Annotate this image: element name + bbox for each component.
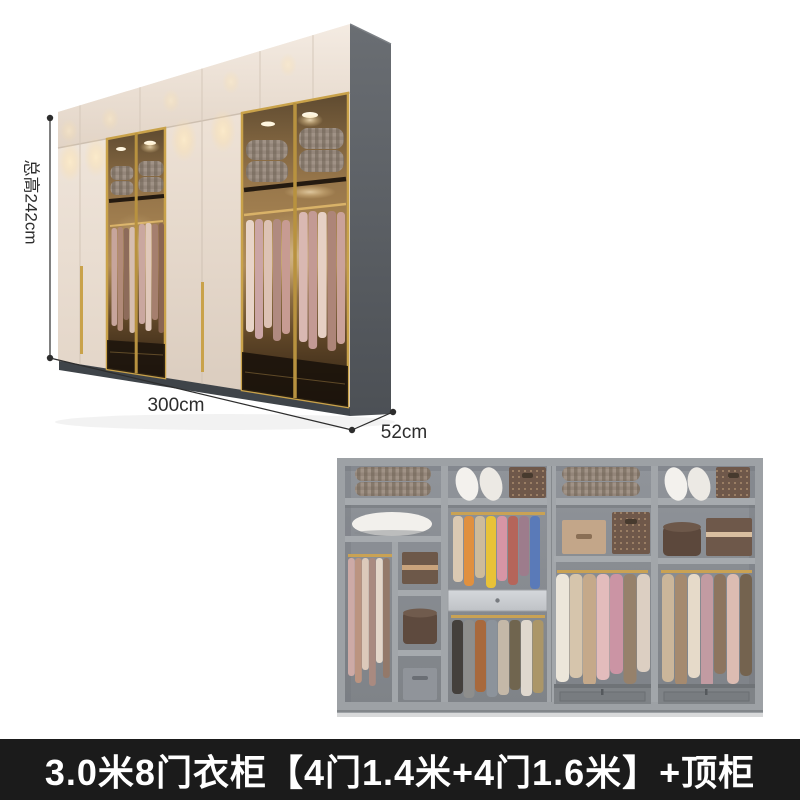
depth-label: 52cm [381, 422, 427, 444]
glass-door-pair-right [242, 93, 348, 407]
glass-door-pair-left [107, 128, 165, 378]
side-panel [350, 24, 391, 416]
product-title-banner: 3.0米8门衣柜【4门1.4米+4门1.6米】+顶柜 [0, 739, 800, 800]
width-label: 300cm [147, 395, 204, 417]
product-image: 总高242cm 300cm 52cm 3.0米8门衣柜【4门1.4米+4门1.6… [0, 0, 800, 800]
product-illustration [0, 0, 800, 800]
wardrobe-interior [337, 458, 763, 717]
wardrobe-exterior [47, 24, 396, 433]
interior-column-3 [554, 512, 651, 704]
total-height-label: 总高242cm [21, 159, 46, 244]
product-title: 3.0米8门衣柜【4门1.4米+4门1.6米】+顶柜 [45, 744, 755, 796]
